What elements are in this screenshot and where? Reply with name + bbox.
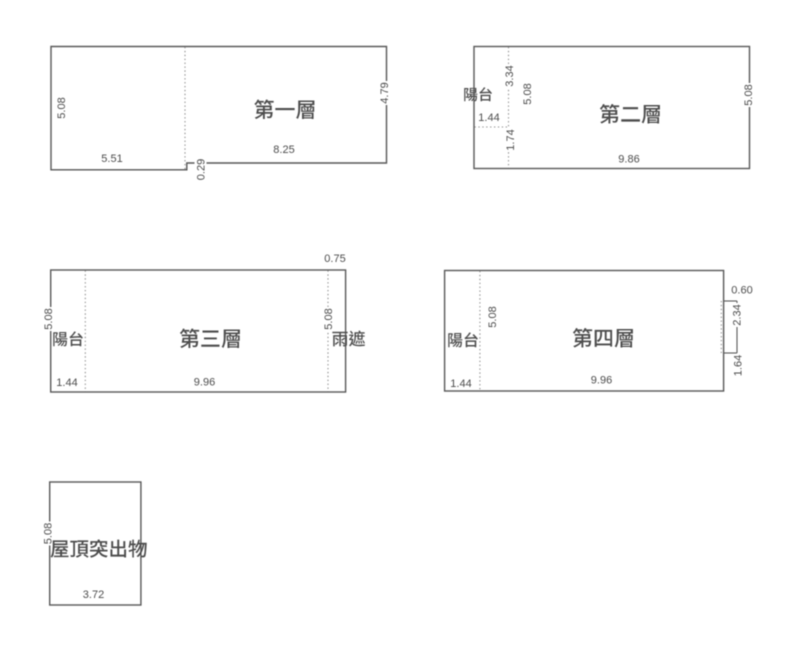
svg-text:5.08: 5.08 bbox=[43, 308, 55, 329]
svg-text:5.08: 5.08 bbox=[487, 306, 499, 327]
svg-text:5.08: 5.08 bbox=[743, 84, 755, 105]
svg-text:0.29: 0.29 bbox=[195, 159, 207, 180]
svg-text:1.44: 1.44 bbox=[478, 112, 499, 124]
svg-text:5.08: 5.08 bbox=[42, 523, 54, 544]
svg-text:5.08: 5.08 bbox=[56, 97, 68, 118]
svg-text:9.96: 9.96 bbox=[591, 374, 612, 386]
svg-text:8.25: 8.25 bbox=[273, 144, 294, 156]
svg-text:1.44: 1.44 bbox=[56, 377, 77, 389]
svg-text:5.51: 5.51 bbox=[101, 153, 122, 165]
svg-text:1.44: 1.44 bbox=[450, 378, 471, 390]
svg-text:1.74: 1.74 bbox=[505, 129, 517, 150]
svg-text:0.60: 0.60 bbox=[731, 284, 752, 296]
svg-text:2.34: 2.34 bbox=[731, 304, 743, 325]
svg-text:9.96: 9.96 bbox=[194, 376, 215, 388]
svg-text:5.08: 5.08 bbox=[522, 83, 534, 104]
svg-text:9.86: 9.86 bbox=[618, 153, 639, 165]
svg-text:3.34: 3.34 bbox=[504, 65, 516, 86]
svg-text:4.79: 4.79 bbox=[379, 82, 391, 103]
svg-text:0.75: 0.75 bbox=[324, 253, 345, 265]
svg-text:5.08: 5.08 bbox=[323, 308, 335, 329]
svg-text:1.64: 1.64 bbox=[732, 355, 744, 376]
svg-text:3.72: 3.72 bbox=[83, 589, 104, 601]
